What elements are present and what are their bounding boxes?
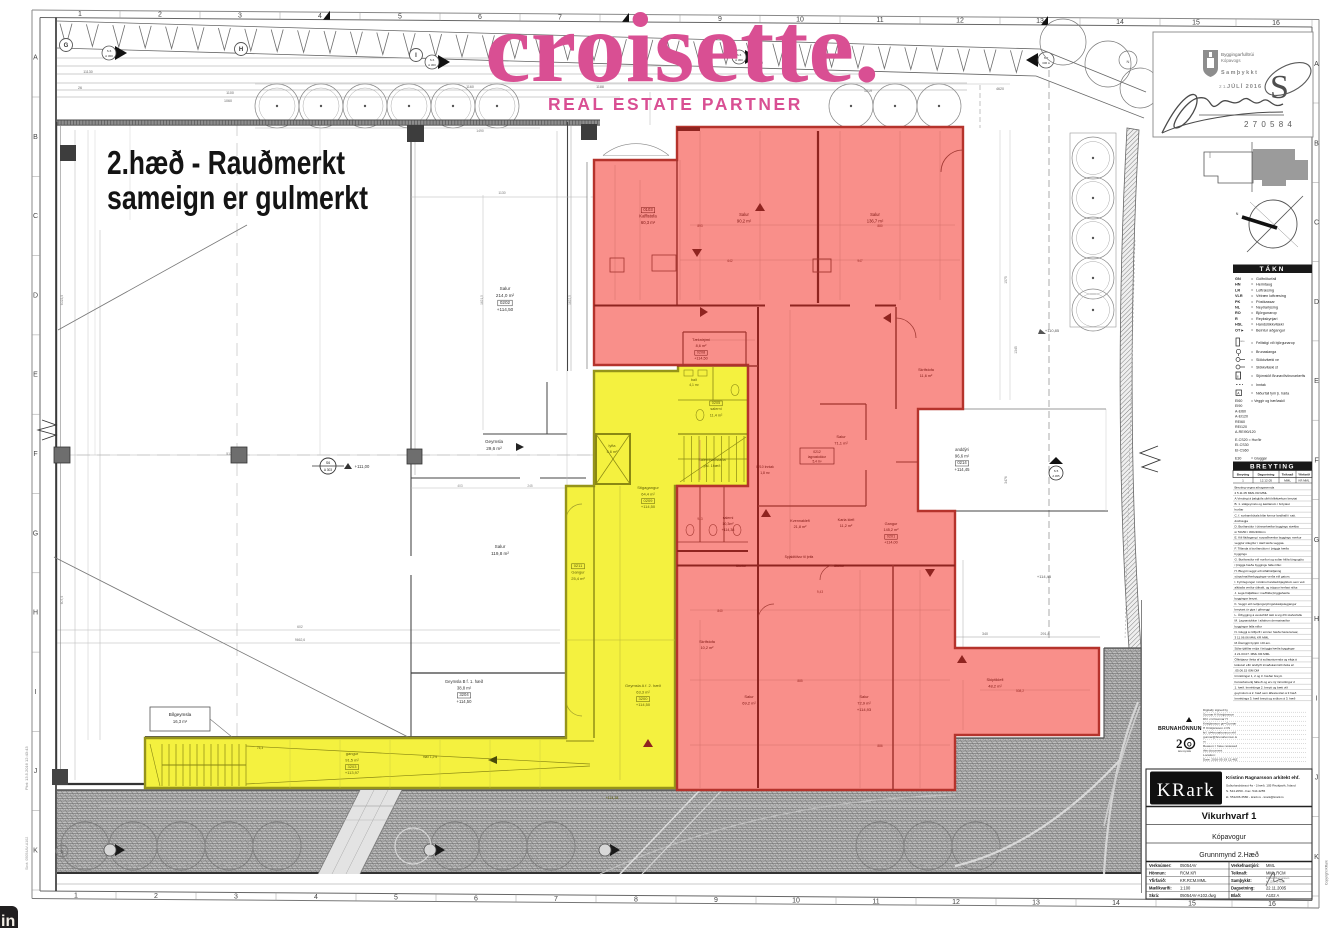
svg-text:64,4 m²: 64,4 m² <box>641 491 655 496</box>
svg-text:0103: 0103 <box>643 207 653 212</box>
svg-text:lyfta: lyfta <box>609 444 617 448</box>
svg-text:S. 544.2050 - Fax. 544.4255: S. 544.2050 - Fax. 544.4255 <box>1226 789 1265 793</box>
svg-text:71,1 m²: 71,1 m² <box>834 440 848 445</box>
svg-text:885: 885 <box>797 679 803 683</box>
svg-text:J. Lega fráljáblau í meðfilda: J. Lega fráljáblau í meðfilda þriggjahæð… <box>1235 590 1290 595</box>
svg-text:8,6 m²: 8,6 m² <box>696 344 707 348</box>
svg-text:1490: 1490 <box>476 129 484 133</box>
svg-text:340: 340 <box>982 632 988 636</box>
svg-text:642: 642 <box>727 259 733 263</box>
svg-text:+114,50: +114,50 <box>636 702 651 707</box>
svg-text:306 A: 306 A <box>1042 61 1050 65</box>
svg-text:=: = <box>1251 383 1253 387</box>
svg-text:9,43: 9,43 <box>817 590 823 594</box>
svg-text:bað: bað <box>691 377 697 382</box>
svg-text:kt. 551206.3580 - krark.is: kt. 551206.3580 - krark.is - krark@krark… <box>1226 795 1284 799</box>
svg-text:S.5: S.5 <box>1054 469 1059 473</box>
svg-text:3203: 3203 <box>348 764 358 769</box>
svg-text:0210 Inntak: 0210 Inntak <box>756 465 774 469</box>
svg-text:3476: 3476 <box>1004 476 1008 484</box>
svg-text:Gólfniðurfall: Gólfniðurfall <box>1256 276 1276 281</box>
svg-text:Gangur: Gangur <box>885 522 898 526</box>
svg-text:gangur: gangur <box>346 751 359 756</box>
svg-text:= Veggir og hæðaskil: = Veggir og hæðaskil <box>1251 398 1285 403</box>
svg-text:NL: NL <box>1235 306 1241 310</box>
svg-text:Mælikvarði:: Mælikvarði: <box>1149 885 1172 890</box>
svg-text:sameign er gulmerkt: sameign er gulmerkt <box>107 179 368 216</box>
svg-text:11130: 11130 <box>83 70 92 74</box>
svg-text:B: B <box>1314 140 1319 147</box>
svg-text:B: B <box>33 134 38 141</box>
svg-text:1060: 1060 <box>224 99 232 103</box>
svg-text:Skrifstofa: Skrifstofa <box>699 640 716 644</box>
svg-text:11,2 m²: 11,2 m² <box>840 524 853 528</box>
svg-text:90,2 m²: 90,2 m² <box>737 219 752 224</box>
svg-text:Spjaldtölvur til þrifa: Spjaldtölvur til þrifa <box>785 555 814 559</box>
svg-text:4: 4 <box>318 13 322 20</box>
svg-text:1160: 1160 <box>466 85 474 89</box>
svg-text:sörpuhnaðherbyggingar verða ei: sörpuhnaðherbyggingar verða eið gatum. <box>1235 573 1291 578</box>
svg-text:I: I <box>35 689 37 696</box>
svg-text:7: 7 <box>554 896 558 903</box>
svg-text:3: 3 <box>238 12 242 19</box>
svg-text:G: G <box>1314 537 1319 544</box>
svg-text:M. Lagnastokkar í aðalrum derm: M. Lagnastokkar í aðalrum dermatnarðar <box>1235 618 1290 623</box>
svg-text:1621,5: 1621,5 <box>480 295 484 305</box>
svg-text:16: 16 <box>1272 20 1280 27</box>
svg-text:RO: RO <box>1235 311 1241 315</box>
svg-text:EI60: EI60 <box>1235 399 1242 403</box>
svg-text:=: = <box>1251 350 1253 354</box>
svg-text:N. Gluggi á niðljurfl í sönnur: N. Gluggi á niðljurfl í sönnur hæða hæta… <box>1235 629 1299 634</box>
svg-text:MML.RCM: MML.RCM <box>1266 870 1286 875</box>
svg-text:= Gluggar: = Gluggar <box>1251 456 1268 460</box>
svg-text:Suðurlandsbraut 4a - 3.hæð, 10: Suðurlandsbraut 4a - 3.hæð, 105 Reykjaví… <box>1226 783 1296 788</box>
svg-text:10,2 m²: 10,2 m² <box>701 646 715 650</box>
svg-text:Samþykkt:: Samþykkt: <box>1231 878 1252 883</box>
svg-text:D: D <box>1314 299 1319 306</box>
svg-text:A-EI60: A-EI60 <box>1235 409 1246 413</box>
svg-text:+114,38: +114,38 <box>606 796 619 800</box>
svg-text:Salur: Salur <box>870 212 880 217</box>
svg-text:14: 14 <box>1112 900 1120 907</box>
svg-text:H: H <box>1314 616 1319 623</box>
svg-text:Skrá:: Skrá: <box>1149 893 1159 898</box>
svg-text:E30: E30 <box>1235 456 1241 460</box>
svg-text:salerni: salerni <box>723 516 734 520</box>
svg-text:5,6 m²: 5,6 m² <box>607 450 618 454</box>
svg-text:05054AV: 05054AV <box>1180 863 1197 868</box>
svg-text:=: = <box>1251 374 1253 378</box>
svg-text:Björgunarop: Björgunarop <box>1256 311 1277 315</box>
svg-text:145,2 m²: 145,2 m² <box>884 528 900 532</box>
svg-text:breytast úr gips í gifsveggi: breytast úr gips í gifsveggi <box>1235 608 1271 612</box>
svg-text:Kristinn Ragnarsson arkitekt e: Kristinn Ragnarsson arkitekt ehf. <box>1226 775 1300 780</box>
svg-text:Heimtaug: Heimtaug <box>1256 283 1272 287</box>
svg-text:S6: S6 <box>326 461 330 465</box>
svg-text:EI-CS30: EI-CS30 <box>1235 443 1249 447</box>
svg-text:anddýri: anddýri <box>955 447 969 452</box>
svg-text:TÁKN: TÁKN <box>1260 264 1286 273</box>
svg-text:S.6: S.6 <box>430 58 435 62</box>
svg-text:in: in <box>1 913 15 928</box>
svg-text:Skrifstofa: Skrifstofa <box>918 368 935 372</box>
svg-text:15: 15 <box>1192 19 1200 26</box>
svg-text:Stigagangur: Stigagangur <box>637 485 659 490</box>
svg-text:Vélræn loftræsing: Vélræn loftræsing <box>1256 294 1286 298</box>
svg-text:Bílgeymsla: Bílgeymsla <box>169 712 192 717</box>
svg-text:Blað:: Blað: <box>1231 893 1241 898</box>
svg-text:REI120: REI120 <box>1235 425 1247 429</box>
svg-text:I: I <box>1316 695 1318 702</box>
svg-text:11: 11 <box>872 898 879 905</box>
svg-text:Handslökkvitæki: Handslökkvitæki <box>1256 323 1284 327</box>
svg-text:12: 12 <box>952 899 960 906</box>
svg-text:kökuturi eftir ándlyrft innaðu: kökuturi eftir ándlyrft innaðukanmiði ðe… <box>1235 662 1295 667</box>
svg-text:Digitally signed by: Digitally signed by <box>1203 708 1228 712</box>
svg-text:O: O <box>1187 743 1192 749</box>
svg-text:2 5.11.05 MML K: 2 5.11.05 MML KR.MML <box>1235 491 1268 495</box>
svg-text:0211: 0211 <box>574 563 583 568</box>
svg-text:=: = <box>1251 366 1253 370</box>
svg-text:48,2 m²: 48,2 m² <box>988 683 1002 688</box>
svg-text:E: E <box>33 372 38 379</box>
svg-text:geymslum á 2. hæð sem áflesta: geymslum á 2. hæð sem áflesta úlan á 3 h… <box>1235 690 1297 695</box>
svg-text:BRUNAHÖNNUN: BRUNAHÖNNUN <box>1158 725 1202 732</box>
svg-text:C: C <box>33 213 38 220</box>
svg-text:REI60: REI60 <box>1235 420 1245 424</box>
svg-text:1345: 1345 <box>1014 346 1018 354</box>
svg-text:REAL ESTATE PARTNER: REAL ESTATE PARTNER <box>548 94 803 114</box>
svg-text:Yfirfarið: Yfirfarið <box>1298 471 1310 476</box>
svg-text:Location:: Location: <box>1203 753 1216 757</box>
svg-text:245: 245 <box>527 484 533 488</box>
svg-text:Vikurhvarf 1: Vikurhvarf 1 <box>1202 811 1257 822</box>
svg-text:91,5 m²: 91,5 m² <box>345 757 359 762</box>
svg-text:byggingar breyst.: byggingar breyst. <box>1235 597 1259 601</box>
svg-text:2: 2 <box>154 893 158 900</box>
svg-text:Grunnmynd 2.Hæð: Grunnmynd 2.Hæð <box>1199 851 1259 859</box>
svg-text:J: J <box>34 768 38 775</box>
svg-text:3 11.06.06 MML: 3 11.06.06 MML KR.MML <box>1235 635 1270 639</box>
svg-text:K: K <box>33 848 38 855</box>
svg-text:Skrá: 05054AV-A102: Skrá: 05054AV-A102 <box>25 837 29 870</box>
svg-text:Teiknað:: Teiknað: <box>1231 870 1248 875</box>
svg-text:1100: 1100 <box>226 91 234 95</box>
svg-text:L. Útbygging á vesturhlið tætt: L. Útbygging á vesturhlið tætt á síg 2% … <box>1235 612 1303 617</box>
svg-text:3200: 3200 <box>639 696 649 701</box>
svg-text:4620: 4620 <box>996 87 1004 91</box>
svg-text:F: F <box>1314 458 1318 465</box>
svg-text:KR.MML: KR.MML <box>1299 479 1310 483</box>
svg-text:A.Verulegt á þakglófa yfirlit: A.Verulegt á þakglófa yfirlit blikktækum… <box>1235 497 1298 501</box>
svg-text:0202: 0202 <box>500 300 511 305</box>
svg-text:A: A <box>33 55 38 62</box>
svg-text:Póstkassar: Póstkassar <box>1256 300 1276 304</box>
svg-text:Forstofumerkj falla ði og eru: Forstofumerkj falla ði og eru ný innrétt… <box>1235 679 1296 684</box>
svg-text:29,6 m²: 29,6 m² <box>486 446 502 451</box>
svg-text:m: m <box>1203 740 1206 744</box>
svg-text:+114,45: +114,45 <box>1037 574 1052 579</box>
svg-text:N: N <box>1127 59 1130 64</box>
svg-text:0201: 0201 <box>887 534 895 538</box>
svg-text:+114,50: +114,50 <box>641 504 656 509</box>
svg-text:602: 602 <box>297 625 303 629</box>
svg-text:=: = <box>1251 392 1253 396</box>
svg-text:22.11.2005: 22.11.2005 <box>1266 885 1287 890</box>
svg-text:Kópavogur: Kópavogur <box>1212 834 1247 841</box>
svg-text:Skiptiklefi: Skiptiklefi <box>987 677 1004 682</box>
svg-text:EI-CS60: EI-CS60 <box>1235 448 1249 452</box>
svg-text:840: 840 <box>717 609 723 613</box>
svg-text:Salur: Salur <box>836 434 846 439</box>
svg-text:4,1 m²: 4,1 m² <box>689 383 699 387</box>
svg-text:2 7 0 5 8 4: 2 7 0 5 8 4 <box>1244 120 1293 129</box>
svg-text:12: 12 <box>956 18 964 25</box>
svg-text:Geymsla A f. 2. hæð: Geymsla A f. 2. hæð <box>625 683 662 688</box>
svg-text:DN: cn=Gunnar H: DN: cn=Gunnar H <box>1203 717 1228 721</box>
svg-text:salerni: salerni <box>710 407 721 411</box>
svg-text:!: ! <box>1237 374 1238 379</box>
svg-text:max 1,2%: max 1,2% <box>423 755 437 759</box>
svg-text:Kópavogs: Kópavogs <box>1221 58 1241 63</box>
svg-text:gunnar@brunahonnun.is: gunnar@brunahonnun.is <box>1203 735 1238 739</box>
svg-text:6: 6 <box>474 895 478 902</box>
svg-text:69,2 m²: 69,2 m² <box>742 700 756 705</box>
svg-text:13: 13 <box>1032 899 1040 906</box>
svg-text:alkitaða verður útihailt, og t: alkitaða verður útihailt, og tröppur her… <box>1235 584 1299 589</box>
svg-text:Tæknirými: Tæknirými <box>692 338 710 342</box>
svg-text:9: 9 <box>714 897 718 904</box>
svg-text:KRark: KRark <box>1157 780 1215 801</box>
svg-text:Byggingarfulltrúi: Byggingarfulltrúi <box>1221 52 1254 57</box>
svg-text:Loftræsing: Loftræsing <box>1256 288 1274 292</box>
svg-text:K. Veggir eið neðjungsrýringsl: K. Veggir eið neðjungsrýringslutækjulegj… <box>1235 601 1297 606</box>
svg-text:F: F <box>33 451 37 458</box>
svg-text:F. Tillanda á burðarsúlum í þr: F. Tillanda á burðarsúlum í þriggja hæða <box>1235 546 1290 551</box>
svg-text:Copyright KRark: Copyright KRark <box>1325 860 1329 885</box>
svg-text:ára reynsla: ára reynsla <box>1178 749 1191 753</box>
svg-text:1,8 m²: 1,8 m² <box>760 471 770 475</box>
svg-text:A-EI120: A-EI120 <box>1235 415 1248 419</box>
svg-text:Sólar tjáliðar eröja í bröggja: Sólar tjáliðar eröja í bröggja hæða bygg… <box>1235 645 1295 650</box>
svg-text:PK: PK <box>1235 300 1241 304</box>
svg-text:Slökkvitæki ve: Slökkvitæki ve <box>1256 358 1279 362</box>
svg-text:2: 2 <box>1176 736 1183 751</box>
svg-text:Salur: Salur <box>495 544 506 549</box>
svg-text:G: G <box>60 849 63 854</box>
svg-text:this document: this document <box>1203 749 1222 753</box>
svg-text:Innréttingar 1, 2 og 3. hæðar: Innréttingar 1, 2 og 3. hæðar breytt. <box>1235 673 1283 678</box>
svg-text:119,8 m²: 119,8 m² <box>491 551 509 556</box>
svg-text:A 303: A 303 <box>324 468 332 472</box>
svg-text:Breyting: Breyting <box>1237 472 1250 476</box>
svg-text:N: N <box>1236 212 1239 216</box>
svg-text:Salur: Salur <box>859 694 869 699</box>
svg-text:3: 3 <box>234 894 238 901</box>
svg-text:Neyðarlýsing: Neyðarlýsing <box>1256 305 1278 310</box>
svg-text:+114,38: +114,38 <box>722 528 735 532</box>
svg-text:Hönnun:: Hönnun: <box>1149 870 1166 875</box>
svg-text:Sturtur: Sturtur <box>834 564 845 568</box>
svg-text:75,3: 75,3 <box>257 746 263 750</box>
svg-text:Dagsetning:: Dagsetning: <box>1231 885 1255 890</box>
svg-text:H Kristjánsson c=IS: H Kristjánsson c=IS <box>1203 726 1230 730</box>
svg-text:Sturtur: Sturtur <box>736 564 747 568</box>
svg-text:A 300: A 300 <box>105 54 113 58</box>
svg-text:psl. 1hæð: psl. 1hæð <box>704 463 721 468</box>
svg-text:D. Burðarsúlur í útinnarhæðar: D. Burðarsúlur í útinnarhæðar byggingu s… <box>1235 523 1299 528</box>
svg-text:893: 893 <box>697 224 703 228</box>
svg-text:C: C <box>1314 220 1319 227</box>
svg-text:Plot: 13.5.2016 12:43:43: Plot: 13.5.2016 12:43:43 <box>24 746 29 790</box>
svg-text:+111,00: +111,00 <box>355 464 370 469</box>
svg-text:Karla klefi: Karla klefi <box>838 518 855 522</box>
svg-text:J: J <box>1315 775 1319 782</box>
svg-text:+114,50: +114,50 <box>457 699 473 704</box>
svg-text:A 300: A 300 <box>428 63 436 67</box>
svg-text:H: H <box>239 47 243 53</box>
svg-text:21,8 m²: 21,8 m² <box>794 525 808 529</box>
svg-text:+114,93: +114,93 <box>857 707 872 712</box>
svg-text:A 305: A 305 <box>1052 474 1060 478</box>
svg-text:25,4 m²: 25,4 m² <box>571 576 585 581</box>
svg-text:Salur: Salur <box>500 286 511 291</box>
svg-text:947: 947 <box>857 259 863 263</box>
svg-text:1:100: 1:100 <box>1180 885 1191 890</box>
svg-text:GN: GN <box>1235 277 1241 281</box>
svg-text:2: 2 <box>158 12 162 19</box>
svg-text:136,7 m²: 136,7 m² <box>867 219 884 224</box>
svg-text:60,3 m²: 60,3 m² <box>641 220 656 225</box>
svg-text:Brunaslanga: Brunaslanga <box>1256 350 1276 354</box>
svg-text:Dagsetning: Dagsetning <box>1258 472 1275 476</box>
svg-text:D: D <box>33 292 38 299</box>
svg-text:VLR: VLR <box>1235 294 1243 298</box>
svg-text:kt. 120443-4869: kt. 120443-4869 <box>1266 880 1285 884</box>
svg-text:Salur: Salur <box>739 212 749 217</box>
svg-text:MML: MML <box>1284 479 1291 483</box>
svg-text:Salur: Salur <box>744 694 754 699</box>
svg-text:krf. id=brunahonnun ehf: krf. id=brunahonnun ehf <box>1203 731 1236 735</box>
svg-text:G: G <box>33 530 38 537</box>
svg-text:508,2: 508,2 <box>1016 689 1024 693</box>
svg-text:A102 A: A102 A <box>1266 893 1279 898</box>
svg-text:Fellistigi við björgunarop: Fellistigi við björgunarop <box>1256 340 1295 345</box>
svg-text:16,3 m²: 16,3 m² <box>173 719 188 724</box>
svg-text:JÚLÍ 2016: JÚLÍ 2016 <box>1227 82 1262 90</box>
svg-text:G. Burðarsúlur eið norðuri og: G. Burðarsúlur eið norðuri og suðar hlið… <box>1235 557 1305 562</box>
svg-text:9662,6: 9662,6 <box>295 638 305 642</box>
svg-text:0208: 0208 <box>697 350 705 354</box>
svg-text:Salernisaðstaða: Salernisaðstaða <box>698 457 726 462</box>
svg-text:E: E <box>1314 378 1319 385</box>
svg-text:S a m þ y k k t: S a m þ y k k t <box>1221 70 1257 76</box>
svg-text:403: 403 <box>457 484 463 488</box>
svg-text:A-REI90/120: A-REI90/120 <box>1235 430 1256 434</box>
svg-text:1575: 1575 <box>1004 276 1008 284</box>
svg-text:KR.RCM.MML: KR.RCM.MML <box>1180 878 1207 883</box>
svg-text:Date: 2016-05-19 12:46Z: Date: 2016-05-19 12:46Z <box>1203 758 1238 762</box>
svg-text:RCM.KR: RCM.KR <box>1180 870 1196 875</box>
svg-text:0209: 0209 <box>644 498 654 503</box>
svg-text:6: 6 <box>478 14 482 21</box>
svg-text:Yfirfarið:: Yfirfarið: <box>1149 878 1166 883</box>
svg-text:72,9 m²: 72,9 m² <box>857 700 871 705</box>
svg-text:dúchægja: dúchægja <box>1235 519 1249 523</box>
svg-text:I. Fyrirlegungar í útöknu hand: I. Fyrirlegungar í útöknu handavirkjagöt… <box>1235 580 1305 584</box>
svg-text:Verkefnastjóri:: Verkefnastjóri: <box>1231 863 1259 868</box>
svg-text:5: 5 <box>398 14 402 21</box>
svg-text:Teiknað: Teiknað <box>1282 471 1294 476</box>
svg-text:A: A <box>1314 61 1319 68</box>
svg-text:Inntak: Inntak <box>1256 383 1266 387</box>
svg-text:11,4 m²: 11,4 m² <box>710 413 723 417</box>
svg-text:3204: 3204 <box>459 692 469 697</box>
svg-text:1: 1 <box>78 11 82 18</box>
svg-text:S.6: S.6 <box>107 49 112 53</box>
svg-text:10,3m²: 10,3m² <box>722 522 734 526</box>
svg-text:1: 1 <box>1242 479 1244 483</box>
svg-text:26: 26 <box>78 86 82 90</box>
svg-text:HSL: HSL <box>1235 323 1243 327</box>
svg-text:M.Útsniggti byrjött í 20 am.: M.Útsniggti byrjött í 20 am. <box>1235 640 1271 645</box>
svg-text:Kristinn Ragnarsson: Kristinn Ragnarsson <box>1266 876 1290 880</box>
svg-text:G: G <box>64 43 69 49</box>
svg-text:38,8 m²: 38,8 m² <box>457 686 472 691</box>
svg-text:0214: 0214 <box>957 460 967 465</box>
svg-text:E. Kili fláðagang í sorpaðhænl: E. Kili fláðagang í sorpaðhænlar bygging… <box>1235 534 1302 539</box>
svg-text:2.hæð - Rauðmerkt: 2.hæð - Rauðmerkt <box>107 144 345 181</box>
svg-text:1130: 1130 <box>498 191 505 195</box>
svg-text:S: S <box>1270 69 1289 106</box>
svg-text:Innréttinga 3. hæð breytt og s: Innréttinga 3. hæð breytt og svölum á 3.… <box>1235 695 1296 700</box>
svg-text:+114,45: +114,45 <box>955 467 971 472</box>
svg-text:hurðar: hurðar <box>1235 507 1244 512</box>
svg-text:Beintur aðgangur: Beintur aðgangur <box>1256 327 1286 332</box>
svg-text:BREYTING: BREYTING <box>1250 464 1295 471</box>
svg-text:Kaffistofa: Kaffistofa <box>639 214 657 219</box>
svg-text:10: 10 <box>792 898 800 905</box>
svg-text:05054AV-A102.dwg: 05054AV-A102.dwg <box>1180 893 1217 898</box>
svg-text:4: 4 <box>314 894 318 901</box>
svg-text:291,8: 291,8 <box>1041 632 1050 636</box>
svg-text:8: 8 <box>634 896 638 903</box>
svg-text:Geymsla: Geymsla <box>485 439 504 444</box>
svg-text:Gangur: Gangur <box>571 569 585 574</box>
svg-text:Gunnar H Kristjánsson: Gunnar H Kristjánsson <box>1203 713 1234 717</box>
svg-text:1622,5: 1622,5 <box>568 295 572 305</box>
svg-text:4 21.03.07. MML: 4 21.03.07. MML KR.MML <box>1235 652 1271 656</box>
svg-text:+114,50: +114,50 <box>694 357 708 361</box>
svg-text:EI90: EI90 <box>1235 404 1242 408</box>
svg-text:Kvennaklefi: Kvennaklefi <box>790 519 810 523</box>
svg-text:16: 16 <box>1268 901 1276 908</box>
svg-text:Stjórnstöð Brunaviðvörunarkerf: Stjórnstöð Brunaviðvörunarkerfis <box>1256 373 1305 378</box>
svg-text:OT ▸: OT ▸ <box>1235 328 1244 332</box>
svg-text:Reason: I have reviewed: Reason: I have reviewed <box>1203 744 1237 748</box>
svg-text:=: = <box>1251 341 1253 345</box>
svg-text:í þriggja hæða byggingu falla: í þriggja hæða byggingu falla niður. <box>1235 562 1283 567</box>
svg-text:byggingar falla niður: byggingar falla niður <box>1235 623 1262 628</box>
svg-text:HN: HN <box>1235 283 1241 287</box>
svg-text:vegglur útlegður í útað tæða v: vegglur útlegður í útað tæða veggáa. <box>1235 540 1285 545</box>
svg-text:+114,50: +114,50 <box>497 307 514 312</box>
svg-text:2 1.: 2 1. <box>1219 84 1227 89</box>
svg-text:.05.06.15 ISM: .05.06.15 ISM DM <box>1235 669 1260 673</box>
svg-text:15: 15 <box>1188 901 1196 908</box>
svg-text:Niðurfall fyrir þ. háða: Niðurfall fyrir þ. háða <box>1256 391 1289 396</box>
